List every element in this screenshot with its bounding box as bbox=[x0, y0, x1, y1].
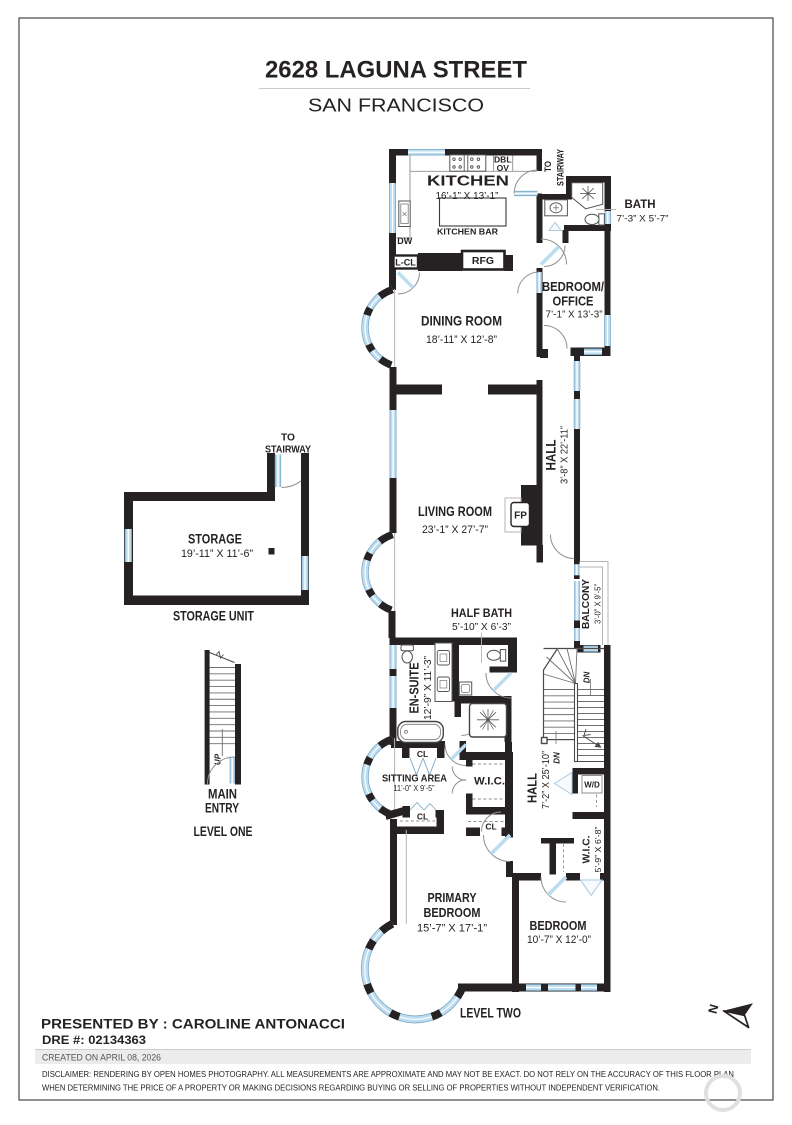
svg-text:HALL: HALL bbox=[544, 440, 559, 471]
svg-text:WHEN DETERMINING THE PRICE OF: WHEN DETERMINING THE PRICE OF A PROPERTY… bbox=[42, 1083, 660, 1093]
svg-text:KITCHEN: KITCHEN bbox=[427, 174, 509, 190]
svg-text:PRIMARY: PRIMARY bbox=[428, 890, 477, 905]
svg-text:3’-0” X 9’-5”: 3’-0” X 9’-5” bbox=[593, 584, 603, 624]
svg-text:LEVEL ONE: LEVEL ONE bbox=[194, 824, 253, 839]
svg-text:ENTRY: ENTRY bbox=[205, 801, 239, 816]
svg-text:PRESENTED BY : CAROLINE ANTONA: PRESENTED BY : CAROLINE ANTONACCI bbox=[41, 1017, 345, 1032]
svg-text:HALL: HALL bbox=[525, 773, 540, 803]
svg-text:W.I.C.: W.I.C. bbox=[474, 776, 505, 788]
svg-text:MAIN: MAIN bbox=[208, 787, 237, 802]
svg-text:5’-9” X 6’-8”: 5’-9” X 6’-8” bbox=[593, 826, 603, 872]
svg-text:7’-3” X 5’-7”: 7’-3” X 5’-7” bbox=[617, 214, 669, 225]
svg-text:15’-7” X 17’-1”: 15’-7” X 17’-1” bbox=[417, 923, 487, 935]
svg-text:STAIRWAY: STAIRWAY bbox=[556, 148, 567, 186]
svg-text:EN-SUITE: EN-SUITE bbox=[407, 662, 422, 713]
svg-text:STORAGE: STORAGE bbox=[188, 532, 242, 547]
svg-text:12’-9” X 11’-3”: 12’-9” X 11’-3” bbox=[422, 656, 434, 720]
svg-text:KITCHEN BAR: KITCHEN BAR bbox=[437, 227, 498, 237]
svg-text:CREATED ON APRIL 08, 2026: CREATED ON APRIL 08, 2026 bbox=[42, 1053, 161, 1063]
svg-text:23’-1” X 27’-7”: 23’-1” X 27’-7” bbox=[422, 524, 488, 536]
svg-text:11’-0” X 9’-5”: 11’-0” X 9’-5” bbox=[394, 784, 435, 793]
svg-text:TO: TO bbox=[281, 432, 295, 444]
svg-text:BEDROOM: BEDROOM bbox=[424, 905, 481, 920]
svg-text:3’-8” X 22’-11”: 3’-8” X 22’-11” bbox=[559, 426, 571, 484]
svg-text:5’-10” X 6’-3”: 5’-10” X 6’-3” bbox=[452, 622, 511, 633]
svg-text:BATH: BATH bbox=[625, 197, 656, 211]
svg-text:DW: DW bbox=[397, 236, 412, 247]
svg-text:FP: FP bbox=[514, 511, 527, 522]
svg-text:2628 LAGUNA STREET: 2628 LAGUNA STREET bbox=[265, 57, 527, 84]
svg-text:DRE #: 02134363: DRE #: 02134363 bbox=[42, 1035, 146, 1047]
svg-text:UP: UP bbox=[214, 753, 223, 765]
svg-text:16’-1” X 13’-1”: 16’-1” X 13’-1” bbox=[436, 190, 499, 202]
svg-text:L-CL: L-CL bbox=[395, 258, 416, 268]
svg-text:18’-11” X 12’-8”: 18’-11” X 12’-8” bbox=[426, 334, 497, 346]
svg-text:STORAGE UNIT: STORAGE UNIT bbox=[173, 608, 254, 624]
svg-text:OV: OV bbox=[497, 163, 510, 173]
svg-text:10’-7” X 12’-0”: 10’-7” X 12’-0” bbox=[527, 934, 591, 946]
svg-text:LEVEL TWO: LEVEL TWO bbox=[460, 1006, 521, 1021]
svg-text:HALF BATH: HALF BATH bbox=[451, 606, 512, 620]
svg-text:TO: TO bbox=[543, 161, 554, 172]
svg-text:LIVING ROOM: LIVING ROOM bbox=[418, 503, 492, 519]
svg-text:7’-1” X 13’-3”: 7’-1” X 13’-3” bbox=[546, 309, 603, 321]
svg-text:7’-2” X 25’-10”: 7’-2” X 25’-10” bbox=[540, 751, 552, 809]
svg-text:BEDROOM/: BEDROOM/ bbox=[542, 280, 604, 294]
svg-text:OFFICE: OFFICE bbox=[553, 295, 594, 309]
svg-text:SAN FRANCISCO: SAN FRANCISCO bbox=[308, 95, 484, 116]
svg-text:CL: CL bbox=[485, 822, 496, 832]
svg-text:BALCONY: BALCONY bbox=[580, 579, 592, 629]
svg-text:SITTING AREA: SITTING AREA bbox=[382, 774, 447, 785]
svg-text:DN: DN bbox=[553, 752, 562, 764]
svg-text:BEDROOM: BEDROOM bbox=[530, 918, 587, 933]
svg-text:RFG: RFG bbox=[472, 255, 494, 267]
svg-text:DINING ROOM: DINING ROOM bbox=[421, 313, 502, 329]
svg-text:CL: CL bbox=[417, 749, 428, 759]
svg-text:CL: CL bbox=[417, 812, 428, 822]
svg-text:19’-11” X 11’-6”: 19’-11” X 11’-6” bbox=[181, 548, 253, 560]
svg-text:W.I.C.: W.I.C. bbox=[582, 835, 593, 863]
svg-text:DISCLAIMER: RENDERING BY OPEN: DISCLAIMER: RENDERING BY OPEN HOMES PHOT… bbox=[42, 1069, 734, 1079]
svg-text:W/D: W/D bbox=[584, 781, 600, 790]
